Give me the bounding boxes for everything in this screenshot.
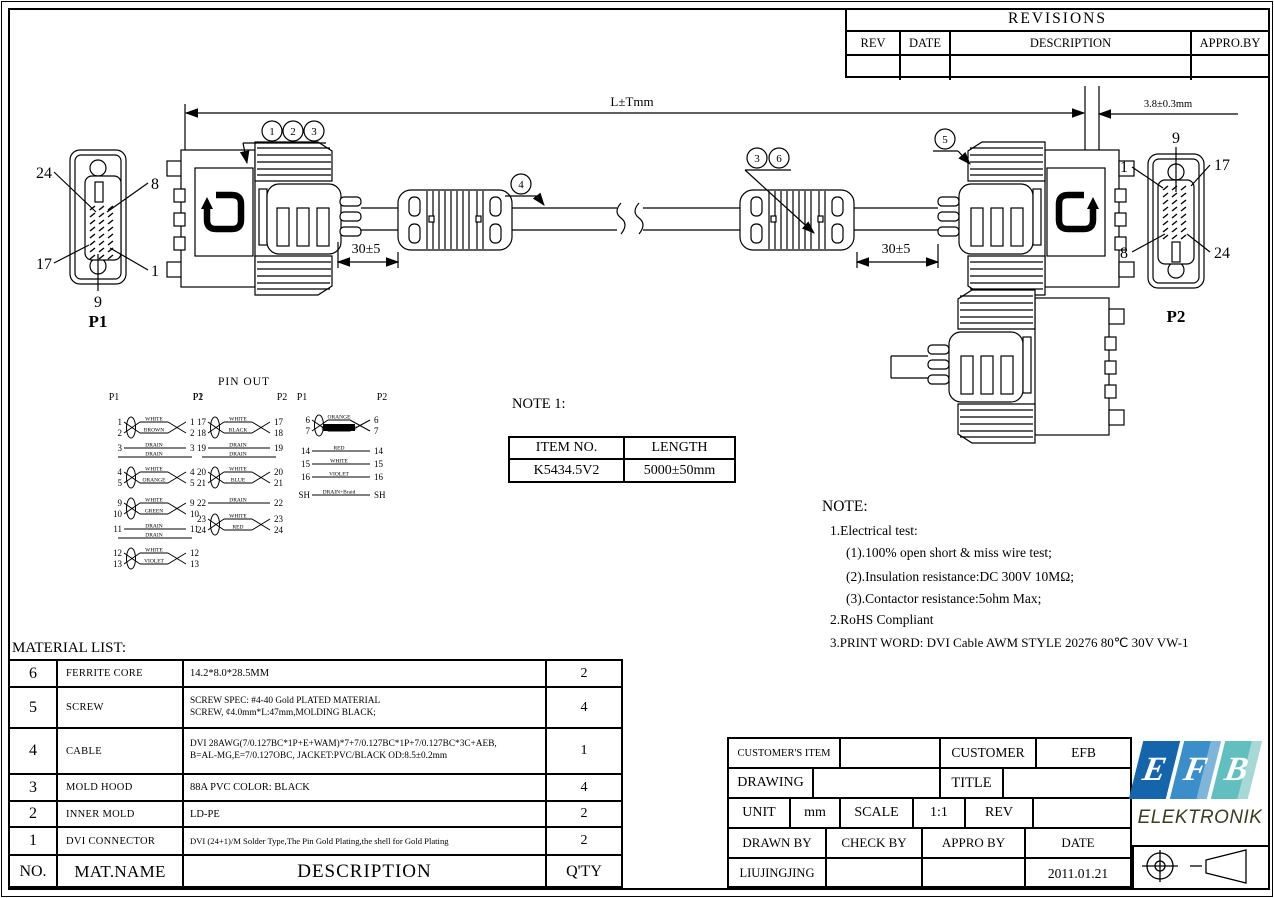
material-list-header-row: NO. MAT.NAME DESCRIPTION Q'TY [10,856,621,887]
svg-text:P1: P1 [193,392,204,403]
svg-text:14: 14 [374,446,384,456]
row-qty: 4 [547,688,621,727]
revisions-table: REVISIONS REV DATE DESCRIPTION APPRO.BY [845,8,1268,78]
row-qty: 2 [547,802,621,826]
table-row: 5 SCREW SCREW SPEC: #4-40 Gold PLATED MA… [10,688,621,729]
svg-text:3: 3 [190,443,195,453]
drawn-by-value: LIUJINGJING [729,859,827,888]
table-row: 2 INNER MOLD LD-PE 2 [10,802,621,828]
svg-text:RED: RED [233,525,244,531]
svg-text:11: 11 [113,524,122,534]
svg-text:12: 12 [113,548,122,558]
date-label: DATE [1026,829,1130,857]
svg-text:7: 7 [374,426,379,436]
drawn-by-label: DRAWN BY [729,829,827,857]
revisions-empty-row [847,56,1268,80]
svg-text:DRAIN: DRAIN [229,443,246,449]
revisions-col-approby: APPRO.BY [1192,32,1268,54]
row-desc: LD-PE [184,802,547,826]
svg-text:23: 23 [197,514,207,524]
row-qty: 1 [547,729,621,773]
note1-header-row: ITEM NO. LENGTH [510,438,734,460]
row-desc: DVI (24+1)/M Solder Type,The Pin Gold Pl… [184,828,547,854]
note1-item-no-header: ITEM NO. [510,438,625,458]
svg-text:18: 18 [274,428,284,438]
svg-text:2: 2 [190,428,195,438]
note1-title: NOTE 1: [512,396,566,413]
cable-run [361,190,938,250]
revisions-title: REVISIONS [847,8,1268,32]
table-row: 6 FERRITE CORE 14.2*8.0*28.5MM 2 [10,661,621,688]
svg-text:WHITE: WHITE [229,514,247,520]
row-name: SCREW [58,688,184,727]
row-desc: SCREW SPEC: #4-40 Gold PLATED MATERIAL S… [184,688,547,727]
appro-by-value [923,859,1026,888]
note-line-2: (1).100% open short & miss wire test; [846,545,1052,561]
p2-name-label: P2 [1167,307,1186,326]
appro-by-label: APPRO BY [923,829,1026,857]
svg-text:WHITE: WHITE [145,467,163,473]
svg-text:P2: P2 [277,392,288,403]
row-no: 4 [10,729,58,773]
svg-text:20: 20 [274,467,284,477]
svg-text:19: 19 [274,443,284,453]
efb-logo-subtitle: ELEKTRONIK [1132,806,1268,829]
svg-text:6: 6 [306,415,311,425]
nose-dimension-label: 3.8±0.3mm [1144,99,1192,110]
svg-text:DRAIN: DRAIN [145,452,162,458]
drawing-sheet: L±Tmm 3.8±0.3mm 30±5 30±5 1 2 3 4 3 6 5 … [0,0,1274,898]
svg-text:23: 23 [274,514,284,524]
svg-text:WHITE: WHITE [145,417,163,423]
svg-text:5: 5 [190,478,195,488]
p2-pin24-label: 24 [1214,245,1230,262]
projection-symbol-cell [1132,845,1268,888]
svg-text:22: 22 [274,498,283,508]
svg-text:15: 15 [301,459,311,469]
svg-text:6: 6 [374,415,379,425]
row-no: 2 [10,802,58,826]
svg-text:22: 22 [197,498,206,508]
row-no: 3 [10,775,58,800]
row-name: MOLD HOOD [58,775,184,800]
customers-item-value [841,739,941,767]
note1-length-value: 5000±50mm [625,460,734,481]
ferrite-core-right [740,190,854,250]
table-row: 3 MOLD HOOD 88A PVC COLOR: BLACK 4 [10,775,621,802]
row-name: FERRITE CORE [58,661,184,686]
svg-text:DRAIN+Braid: DRAIN+Braid [323,490,356,496]
right-ferrite-dim-label: 30±5 [882,242,911,257]
row-desc: 88A PVC COLOR: BLACK [184,775,547,800]
efb-logo: E F B [1136,741,1255,799]
svg-text:16: 16 [374,472,384,482]
callout-2-number: 2 [290,126,296,138]
svg-text:2: 2 [118,428,123,438]
svg-text:15: 15 [374,459,384,469]
left-ferrite-dim-label: 30±5 [352,242,381,257]
row-name: INNER MOLD [58,802,184,826]
svg-text:24: 24 [197,525,207,535]
row-no: 6 [10,661,58,686]
p2-pin17-label: 17 [1214,157,1230,174]
scale-value: 1:1 [914,799,966,827]
callout-6-number: 6 [776,153,782,165]
row-qty: 2 [547,661,621,686]
svg-text:3: 3 [118,443,123,453]
row-qty: 4 [547,775,621,800]
cable-break-symbol [635,203,643,234]
row-desc: DVI 28AWG(7/0.127BC*1P+E+WAM)*7+7/0.127B… [184,729,547,773]
svg-text:RED: RED [334,446,345,452]
overall-length-label: L±Tmm [610,94,653,109]
svg-text:SH: SH [374,490,386,500]
svg-text:SH: SH [298,490,310,500]
row-qty: 2 [547,828,621,854]
svg-text:5: 5 [118,478,123,488]
svg-text:WHITE: WHITE [145,498,163,504]
svg-text:24: 24 [274,525,284,535]
header-description: DESCRIPTION [184,856,547,887]
note-line-4: (3).Contactor resistance:5ohm Max; [846,591,1041,607]
svg-text:DRAIN: DRAIN [145,443,162,449]
svg-text:17: 17 [197,417,207,427]
svg-text:1: 1 [190,417,195,427]
svg-text:20: 20 [197,467,207,477]
row-no: 1 [10,828,58,854]
note-title: NOTE: [822,498,868,516]
check-by-label: CHECK BY [827,829,923,857]
svg-text:21: 21 [197,478,206,488]
note-line-3: (2).Insulation resistance:DC 300V 10MΩ; [846,569,1074,585]
scale-label: SCALE [841,799,914,827]
svg-text:P1: P1 [109,392,120,403]
rev-value [1034,799,1130,827]
p1-connector-face [54,150,148,291]
callout-3-number: 3 [311,126,317,138]
p1-name-label: P1 [89,312,108,331]
drawing-label: DRAWING [729,769,814,797]
svg-text:10: 10 [113,509,123,519]
note-line-5: 2.RoHS Compliant [830,612,934,628]
svg-text:9: 9 [118,498,123,508]
svg-text:P2: P2 [377,392,388,403]
callout-5 [933,129,970,164]
svg-text:WHITE: WHITE [229,417,247,423]
p2-pin8-label: 8 [1120,245,1128,262]
row-no: 5 [10,688,58,727]
p1-pin24-label: 24 [36,165,52,182]
title-label: TITLE [941,769,1004,797]
row-name: DVI CONNECTOR [58,828,184,854]
svg-text:12: 12 [190,548,199,558]
rev-label: REV [966,799,1034,827]
svg-text:7: 7 [306,426,311,436]
callout-5-number: 5 [942,134,948,146]
p2-connector-face [1132,147,1210,288]
table-row: 1 DVI CONNECTOR DVI (24+1)/M Solder Type… [10,828,621,856]
note1-table: ITEM NO. LENGTH K5434.5V2 5000±50mm [508,436,736,483]
svg-text:13: 13 [113,559,123,569]
revisions-col-rev: REV [847,32,901,54]
svg-text:13: 13 [190,559,200,569]
date-value: 2011.01.21 [1026,859,1130,888]
p1-pin9-label: 9 [94,294,102,311]
svg-text:DRAIN: DRAIN [229,498,246,504]
svg-text:WHITE: WHITE [330,459,348,465]
svg-text:1: 1 [118,417,123,427]
svg-text:16: 16 [301,472,311,482]
table-row: 4 CABLE DVI 28AWG(7/0.127BC*1P+E+WAM)*7+… [10,729,621,775]
note1-item-no-value: K5434.5V2 [510,460,625,481]
check-by-value [827,859,923,888]
p2-top-view [891,290,1124,443]
header-no: NO. [10,856,58,887]
svg-text:DRAIN: DRAIN [145,524,162,530]
svg-text:ORANGE: ORANGE [143,478,167,484]
title-block: CUSTOMER'S ITEM CUSTOMER EFB DRAWING TIT… [727,737,1132,888]
svg-text:9: 9 [190,498,195,508]
customer-label: CUSTOMER [941,739,1037,767]
material-list-title: MATERIAL LIST: [12,640,126,657]
header-mat-name: MAT.NAME [58,856,184,887]
cable-break-symbol [617,203,625,234]
svg-text:4: 4 [118,467,123,477]
p1-pin1-label: 1 [151,263,159,280]
svg-text:VIOLET: VIOLET [144,559,164,565]
svg-text:18: 18 [197,428,207,438]
material-list-table: 6 FERRITE CORE 14.2*8.0*28.5MM 2 5 SCREW… [8,659,623,888]
revisions-col-date: DATE [901,32,951,54]
pinout-title: PIN OUT [218,376,270,388]
svg-text:17: 17 [274,417,284,427]
callout-3b-number: 3 [754,153,760,165]
p1-pin17-label: 17 [36,256,52,273]
p2-pin9-label: 9 [1172,130,1180,147]
svg-text:VIOLET: VIOLET [329,472,349,478]
p1-pin8-label: 8 [151,176,159,193]
note1-value-row: K5434.5V2 5000±50mm [510,460,734,481]
row-name: CABLE [58,729,184,773]
customer-value: EFB [1037,739,1130,767]
drawing-value [814,769,941,797]
svg-text:14: 14 [301,446,311,456]
header-qty: Q'TY [547,856,621,887]
svg-text:4: 4 [190,467,195,477]
revisions-col-description: DESCRIPTION [951,32,1192,54]
svg-text:GREEN: GREEN [145,509,163,515]
svg-text:WHITE: WHITE [145,548,163,554]
svg-text:BLUE: BLUE [231,478,246,484]
revisions-header-row: REV DATE DESCRIPTION APPRO.BY [847,32,1268,56]
note-line-1: 1.Electrical test: [830,523,918,539]
svg-text:19: 19 [197,443,207,453]
third-angle-projection-icon [1134,847,1266,886]
callout-4-number: 4 [518,179,524,191]
p2-pin1-label: 1 [1120,159,1128,176]
svg-text:BLACK: BLACK [229,428,248,434]
svg-text:21: 21 [274,478,283,488]
ferrite-core-left [398,190,512,250]
note1-length-header: LENGTH [625,438,734,458]
unit-label: UNIT [729,799,791,827]
svg-text:DRAIN: DRAIN [229,452,246,458]
svg-text:ORANGE: ORANGE [328,415,352,421]
svg-text:P1: P1 [297,392,308,403]
p2-side-view [938,142,1134,295]
customers-item-label: CUSTOMER'S ITEM [729,739,841,767]
pinout-diagram: P1P21212WHITEBROWN33DRAINDRAIN4545WHITEO… [109,392,388,569]
note-line-6: 3.PRINT WORD: DVI Cable AWM STYLE 20276 … [830,635,1189,651]
row-desc: 14.2*8.0*28.5MM [184,661,547,686]
p1-side-view [167,142,361,295]
svg-text:RED/ORANGE: RED/ORANGE [321,426,357,432]
title-value [1004,769,1130,797]
unit-value: mm [791,799,841,827]
callout-1-number: 1 [269,126,275,138]
svg-text:BROWN: BROWN [144,428,165,434]
svg-text:WHITE: WHITE [229,467,247,473]
svg-text:DRAIN: DRAIN [145,533,162,539]
